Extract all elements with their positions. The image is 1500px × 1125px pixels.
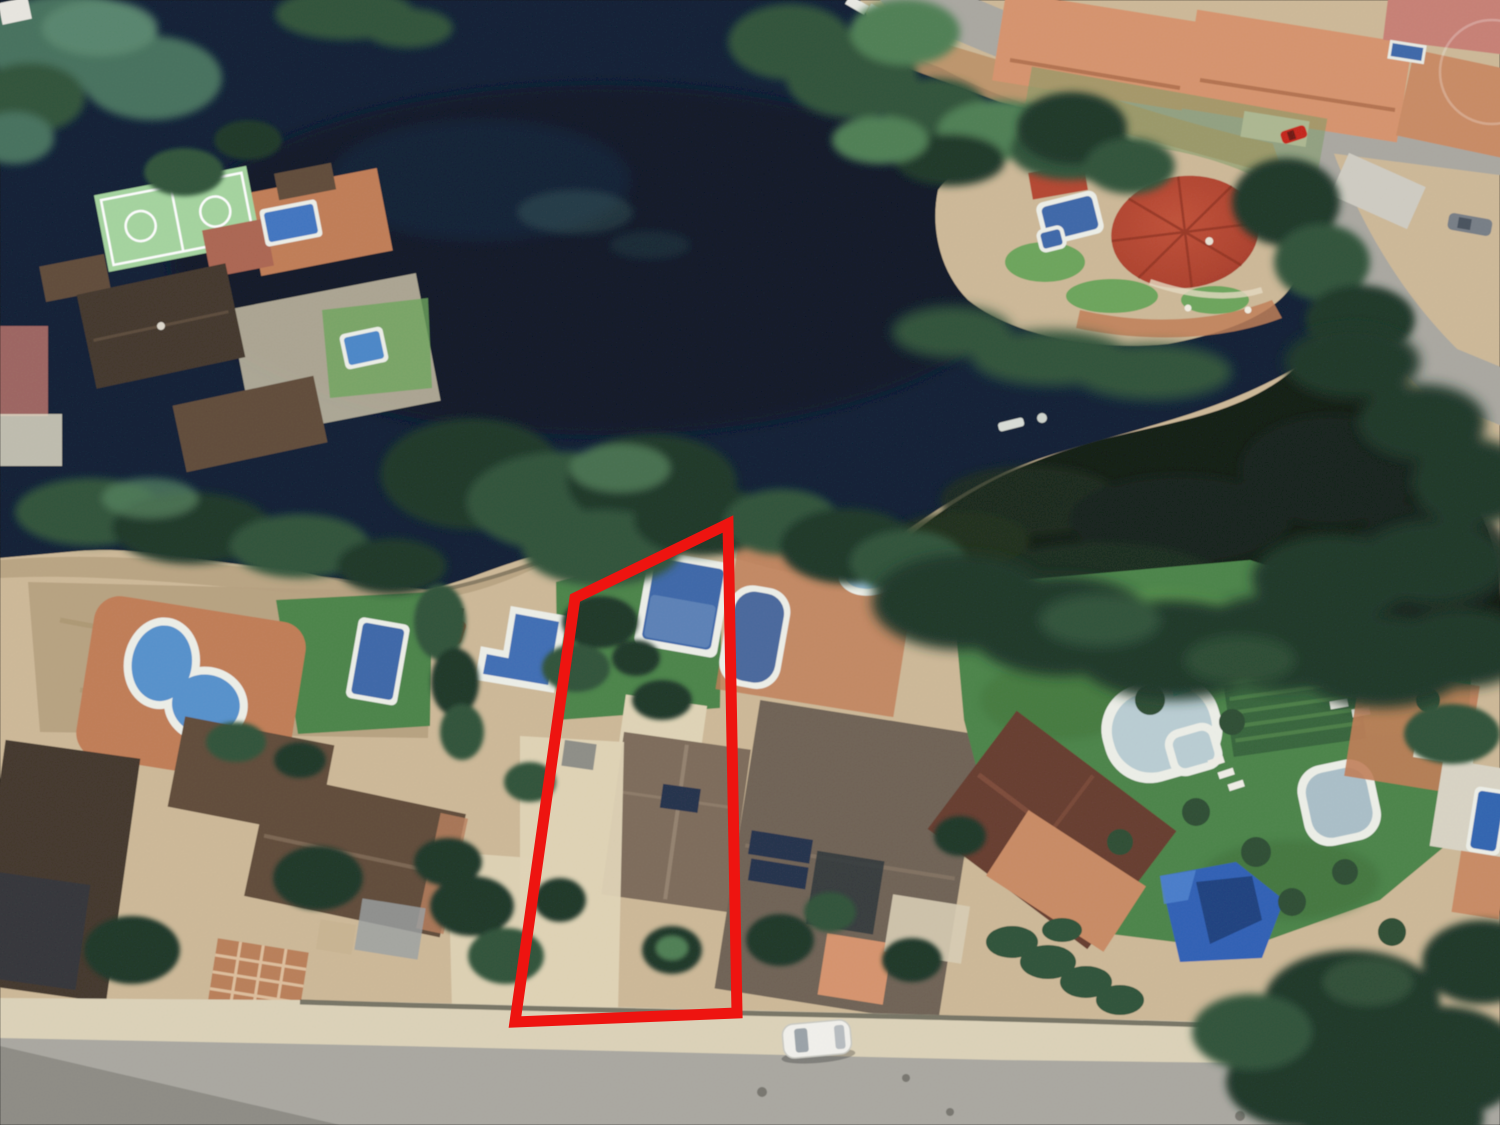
scene	[0, 0, 1500, 1125]
photo-grain	[0, 0, 1500, 1125]
aerial-photo	[0, 0, 1500, 1125]
aerial-photo-canvas	[0, 0, 1500, 1125]
